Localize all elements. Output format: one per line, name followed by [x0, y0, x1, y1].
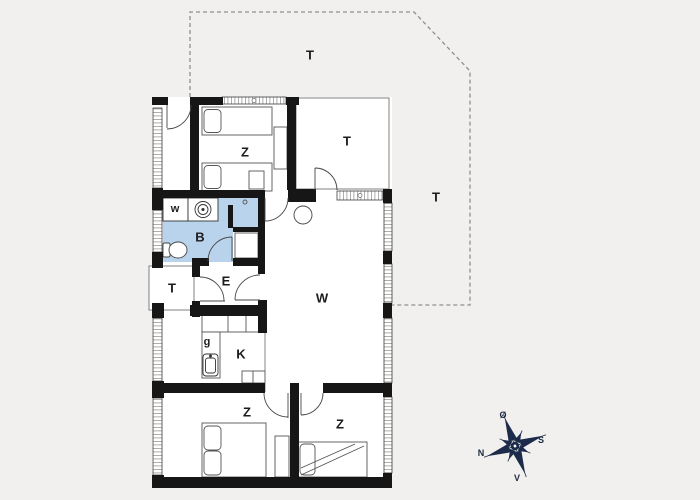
floor-plan-canvas: T T T T Z Z Z W B E K w g Ø S N V	[0, 0, 700, 500]
window-right-4	[384, 397, 392, 473]
sink-icon	[203, 354, 218, 376]
wardrobe-top-bedroom	[274, 127, 287, 169]
dresser-top-bedroom	[249, 171, 264, 189]
bed-single-1	[202, 107, 272, 135]
washer-w-box	[163, 198, 188, 221]
window-right-3	[384, 318, 392, 383]
bed-double	[202, 423, 266, 477]
window-right-1	[384, 203, 392, 251]
wardrobe-bottom-bedroom	[275, 436, 289, 477]
bunk-bed	[298, 442, 367, 477]
window-right-2	[384, 264, 392, 303]
terrace-room-outline	[296, 98, 389, 189]
closet-entry	[235, 233, 258, 258]
washing-machine-icon	[188, 198, 218, 221]
window-left-bath	[153, 210, 162, 252]
window-left-kitchen	[153, 318, 162, 381]
floor-plan-drawing	[0, 0, 700, 500]
toilet-icon	[163, 242, 187, 258]
window-marker-2	[358, 194, 362, 198]
window-left-bedroom	[153, 398, 162, 475]
window-left-1	[153, 108, 162, 188]
window-marker-1	[252, 99, 256, 103]
compass-rose	[473, 404, 558, 489]
